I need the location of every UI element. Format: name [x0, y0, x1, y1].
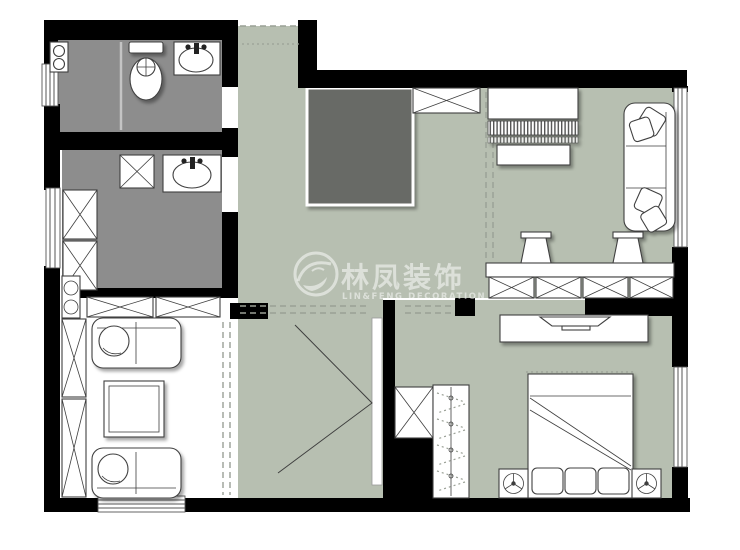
cabinet-x-icon	[120, 155, 154, 188]
cabinet-x-icon	[63, 190, 97, 239]
floor-plan-drawing: 林凤装饰 LIN&FENG DECORATION	[0, 0, 740, 550]
wardrobe-hanger-icon	[433, 385, 469, 498]
hallway-floor	[238, 218, 383, 498]
cabinet-x-icon	[156, 297, 220, 317]
bar-counter-icon	[486, 263, 674, 298]
coffee-table-icon	[104, 381, 164, 437]
tall-cabinet-x-icon	[62, 399, 86, 497]
cabinet-x-icon	[395, 387, 433, 438]
window-right-top	[674, 88, 687, 247]
watermark-title: 林凤装饰	[341, 261, 465, 294]
watermark-subtitle: LIN&FENG DECORATION	[342, 292, 486, 302]
utility-column-icon	[62, 276, 80, 318]
washer-icon	[50, 42, 68, 72]
piano-bench-icon	[497, 145, 570, 165]
entry-corridor-floor	[238, 26, 305, 218]
tall-cabinet-x-icon	[62, 319, 86, 397]
cabinet-x-icon	[413, 88, 480, 113]
kitchen-sink-icon	[163, 155, 221, 192]
double-bed-icon	[526, 372, 635, 498]
loveseat-icon	[92, 448, 181, 498]
loveseat-icon	[92, 318, 181, 368]
bar-stool-icon	[521, 232, 551, 263]
cabinet-x-icon	[87, 297, 153, 317]
sofa-icon	[624, 103, 675, 234]
nightstand-lamp-icon	[632, 469, 661, 498]
bathroom-sink-icon	[174, 42, 220, 75]
sitting-room	[62, 276, 220, 498]
toilet-icon	[129, 42, 163, 100]
sliding-door-panel	[372, 318, 382, 485]
floor-plan-canvas: 林凤装饰 LIN&FENG DECORATION	[0, 0, 740, 550]
window-left-mid	[46, 188, 60, 268]
window-right-bottom	[674, 367, 687, 467]
bar-stool-icon	[613, 232, 643, 263]
piano-icon	[488, 88, 578, 143]
nightstand-lamp-icon	[499, 469, 528, 498]
dark-core-area	[307, 88, 413, 205]
